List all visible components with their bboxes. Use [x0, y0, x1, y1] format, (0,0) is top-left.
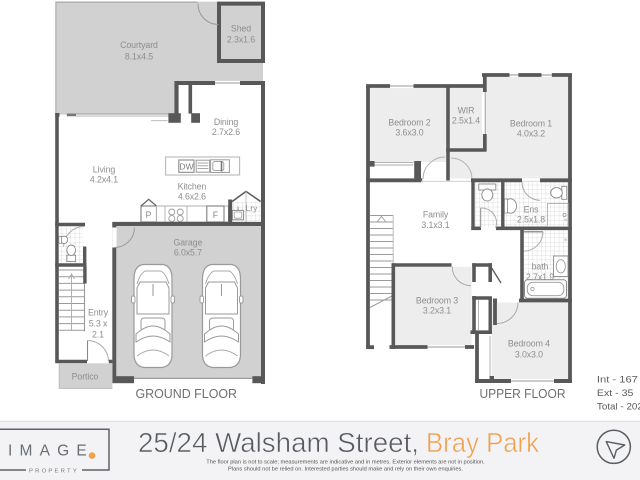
svg-text:3.0x3.0: 3.0x3.0	[515, 350, 543, 360]
svg-text:WIR: WIR	[458, 106, 475, 116]
svg-text:3.1x3.1: 3.1x3.1	[421, 220, 449, 230]
svg-text:Bedroom 2: Bedroom 2	[388, 118, 430, 128]
svg-text:Entry: Entry	[88, 308, 109, 318]
svg-text:2.7x2.6: 2.7x2.6	[212, 127, 240, 137]
svg-text:bath: bath	[532, 262, 549, 272]
svg-text:2.5x1.8: 2.5x1.8	[517, 215, 545, 225]
svg-text:2.3x1.6: 2.3x1.6	[227, 35, 255, 45]
svg-text:4.2x4.1: 4.2x4.1	[90, 175, 118, 185]
svg-text:Int - 167: Int - 167	[597, 375, 638, 385]
svg-text:2.1: 2.1	[92, 330, 104, 340]
svg-text:DW: DW	[179, 162, 194, 172]
svg-text:Ext - 35: Ext - 35	[597, 388, 634, 398]
svg-text:Dining: Dining	[214, 117, 239, 127]
svg-text:Bedroom 1: Bedroom 1	[510, 119, 552, 129]
svg-text:25/24 Walsham Street,: 25/24 Walsham Street,	[138, 427, 419, 458]
svg-text:Garage: Garage	[174, 238, 203, 248]
svg-text:Bedroom 4: Bedroom 4	[508, 339, 550, 349]
svg-text:2.5x1.4: 2.5x1.4	[452, 116, 480, 126]
svg-text:PROPERTY: PROPERTY	[29, 468, 79, 474]
svg-text:Living: Living	[93, 165, 116, 175]
svg-text:Lry: Lry	[246, 203, 259, 213]
svg-text:Shed: Shed	[231, 24, 251, 34]
svg-text:4.0x3.2: 4.0x3.2	[517, 129, 545, 139]
svg-text:IMAGE: IMAGE	[8, 443, 94, 460]
svg-text:3.2x3.1: 3.2x3.1	[423, 306, 451, 316]
svg-text:8.1x4.5: 8.1x4.5	[125, 52, 153, 62]
svg-text:The floor plan is not to scale: The floor plan is not to scale; measurem…	[206, 460, 485, 466]
svg-text:Ens: Ens	[524, 205, 540, 215]
svg-text:Total - 202: Total - 202	[597, 402, 640, 412]
svg-text:3.6x3.0: 3.6x3.0	[395, 128, 423, 138]
svg-text:Kitchen: Kitchen	[178, 181, 207, 191]
svg-text:Bray Park: Bray Park	[426, 427, 539, 458]
svg-text:4.6x2.6: 4.6x2.6	[178, 192, 206, 202]
svg-text:P: P	[146, 210, 152, 220]
svg-text:5.3 x: 5.3 x	[89, 319, 108, 329]
svg-text:GROUND FLOOR: GROUND FLOOR	[136, 386, 238, 401]
svg-text:6.0x5.7: 6.0x5.7	[174, 248, 202, 258]
svg-text:UPPER FLOOR: UPPER FLOOR	[480, 386, 566, 401]
svg-text:Courtyard: Courtyard	[120, 40, 158, 50]
svg-text:F: F	[213, 210, 219, 220]
svg-text:Plans should not be relied on.: Plans should not be relied on. Intereste…	[228, 467, 463, 473]
svg-text:Family: Family	[423, 210, 449, 220]
svg-text:Bedroom 3: Bedroom 3	[416, 296, 458, 306]
svg-text:Portico: Portico	[72, 372, 99, 382]
